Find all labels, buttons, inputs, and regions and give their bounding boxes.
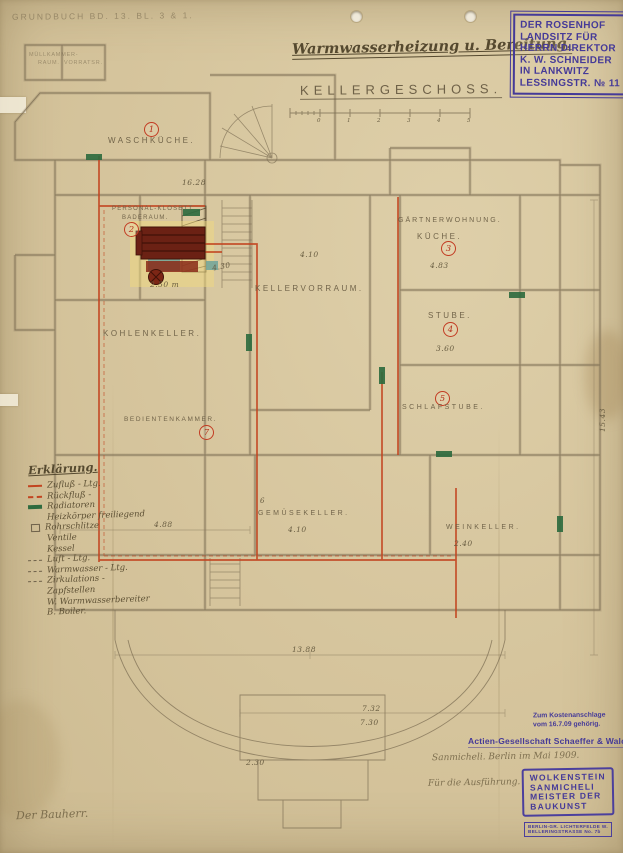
- room-label-muellkammer-2: RAUM.: [38, 60, 60, 66]
- owner-stamp-line: IN LANKWITZ: [520, 66, 620, 78]
- circulation-line-swatch-icon: [28, 581, 42, 582]
- owner-stamp-line: LANDSITZ FÜR: [520, 31, 620, 43]
- room-label-kellervorraum: KELLERVORRAUM.: [255, 284, 364, 293]
- dim-weinkeller: 2.40: [454, 539, 473, 548]
- owner-stamp-line: HERRN DIREKTOR: [520, 43, 620, 55]
- room-label-bedientenkammer: BEDIENTENKAMMER.: [124, 416, 217, 423]
- room-label-baderaum: BADERAUM.: [122, 215, 168, 221]
- address-stamp: BERLIN-GR. LICHTERFELDE W. BELLERINGSTRA…: [524, 822, 612, 837]
- room-number-4: 4: [443, 322, 458, 337]
- scale-tick: 0: [317, 118, 321, 124]
- staircase-fan: [220, 104, 277, 163]
- room-number-1: 1: [144, 122, 159, 137]
- room-label-waschkueche: WASCHKÜCHE.: [108, 136, 195, 145]
- dim-stube: 3.60: [436, 344, 455, 353]
- registry-note: GRUNDBUCH BD. 13. BL. 3 & 1.: [12, 10, 194, 22]
- dimension-value: 16.28: [182, 178, 206, 187]
- room-number-6: 6: [260, 497, 265, 505]
- legend-spacer: [28, 590, 42, 594]
- scale-tick: 4: [437, 118, 441, 124]
- legend-spacer: [28, 537, 42, 541]
- legend: Erklärung. Zufluß - Ltg. Rückfluß - Radi…: [28, 460, 158, 617]
- room-label-vorratsraum: VORRATSR.: [64, 60, 103, 66]
- architect-stamp: WOLKENSTEIN SANMICHELI MEISTER DER BAUKU…: [522, 767, 615, 817]
- legend-spacer: [28, 516, 42, 520]
- legend-label: Ventile: [47, 533, 77, 544]
- hot-water-line-swatch-icon: [28, 570, 42, 571]
- dimension-value: 7.32: [362, 704, 381, 713]
- scale-tick: 2: [377, 118, 381, 124]
- room-number-7: 7: [199, 425, 214, 440]
- scale-tick: 1: [347, 118, 351, 124]
- room-label-weinkeller: WEINKELLER.: [446, 524, 521, 531]
- dim-gemuesekeller: 4.10: [288, 525, 307, 534]
- scale-tick: 5: [467, 118, 471, 124]
- legend-spacer: [28, 601, 42, 605]
- dimension-value: 4.10: [300, 250, 319, 259]
- room-label-gaertnerwohnung: GÄRTNERWOHNUNG.: [398, 217, 502, 224]
- scale-tick: 3: [407, 118, 411, 124]
- return-line-swatch-icon: [28, 496, 42, 498]
- legend-label: B. Boiler.: [47, 607, 87, 618]
- dim-kueche: 4.83: [430, 261, 449, 270]
- room-number-2: 2: [124, 222, 139, 237]
- client-signature-label: Der Bauherr.: [16, 807, 89, 823]
- cost-note-line: Zum Kostenanschlage: [533, 712, 606, 721]
- staircase-rungs: [210, 200, 252, 606]
- address-stamp-line: BELLERINGSTRASSE No. 7b: [528, 829, 608, 834]
- terrace: [115, 610, 505, 828]
- legend-spacer: [28, 611, 42, 615]
- scale-bar: [290, 108, 470, 118]
- drawing-sheet: GRUNDBUCH BD. 13. BL. 3 & 1. Warmwasserh…: [0, 0, 623, 853]
- room-label-stube: STUBE.: [428, 311, 472, 320]
- owner-stamp-line: K. W. SCHNEIDER: [520, 54, 620, 66]
- air-line-swatch-icon: [28, 560, 42, 561]
- company-stamp: Actien-Gesellschaft Schaeffer & Walcker.: [468, 736, 623, 748]
- room-label-schlafstube: SCHLAFSTUBE.: [402, 404, 485, 411]
- room-label-gemuesekeller: GEMÜSEKELLER.: [258, 510, 350, 517]
- floorplan-svg: [0, 0, 623, 853]
- dimension-value: 13.88: [292, 645, 316, 654]
- room-label-personal-klosett: PERSONAL-KLOSETT: [112, 206, 193, 212]
- owner-stamp: DER ROSENHOF LANDSITZ FÜR HERRN DIREKTOR…: [513, 14, 623, 96]
- dimension-value: 7.30: [360, 718, 379, 727]
- pipe-chase-swatch-icon: [31, 525, 40, 533]
- room-label-muellkammer: MÜLLKAMMER-: [29, 52, 78, 58]
- radiator-swatch-icon: [28, 505, 42, 509]
- architect-stamp-line: BAUKUNST: [530, 801, 606, 812]
- supply-line-swatch-icon: [28, 485, 42, 487]
- room-label-kohlenkeller: KOHLENKELLER.: [103, 329, 201, 338]
- cost-estimate-stamp: Zum Kostenanschlage vom 16.7.09 gehörig.: [533, 712, 606, 730]
- legend-spacer: [28, 548, 42, 552]
- legend-label: Zapfstellen: [47, 585, 96, 597]
- dimension-value: 15.43: [598, 408, 607, 432]
- cost-note-line: vom 16.7.09 gehörig.: [533, 720, 606, 729]
- owner-stamp-line: DER ROSENHOF: [520, 20, 620, 32]
- dimension-value: 2.30: [246, 758, 265, 767]
- owner-stamp-line: LESSINGSTR. № 11: [520, 77, 620, 89]
- room-number-3: 3: [441, 241, 456, 256]
- dimension-value: 2.50 m: [150, 280, 179, 289]
- floor-label: KELLERGESCHOSS.: [300, 81, 502, 100]
- room-label-kueche: KÜCHE.: [417, 232, 462, 241]
- pencil-execution-note: Für die Ausführung.: [428, 777, 521, 789]
